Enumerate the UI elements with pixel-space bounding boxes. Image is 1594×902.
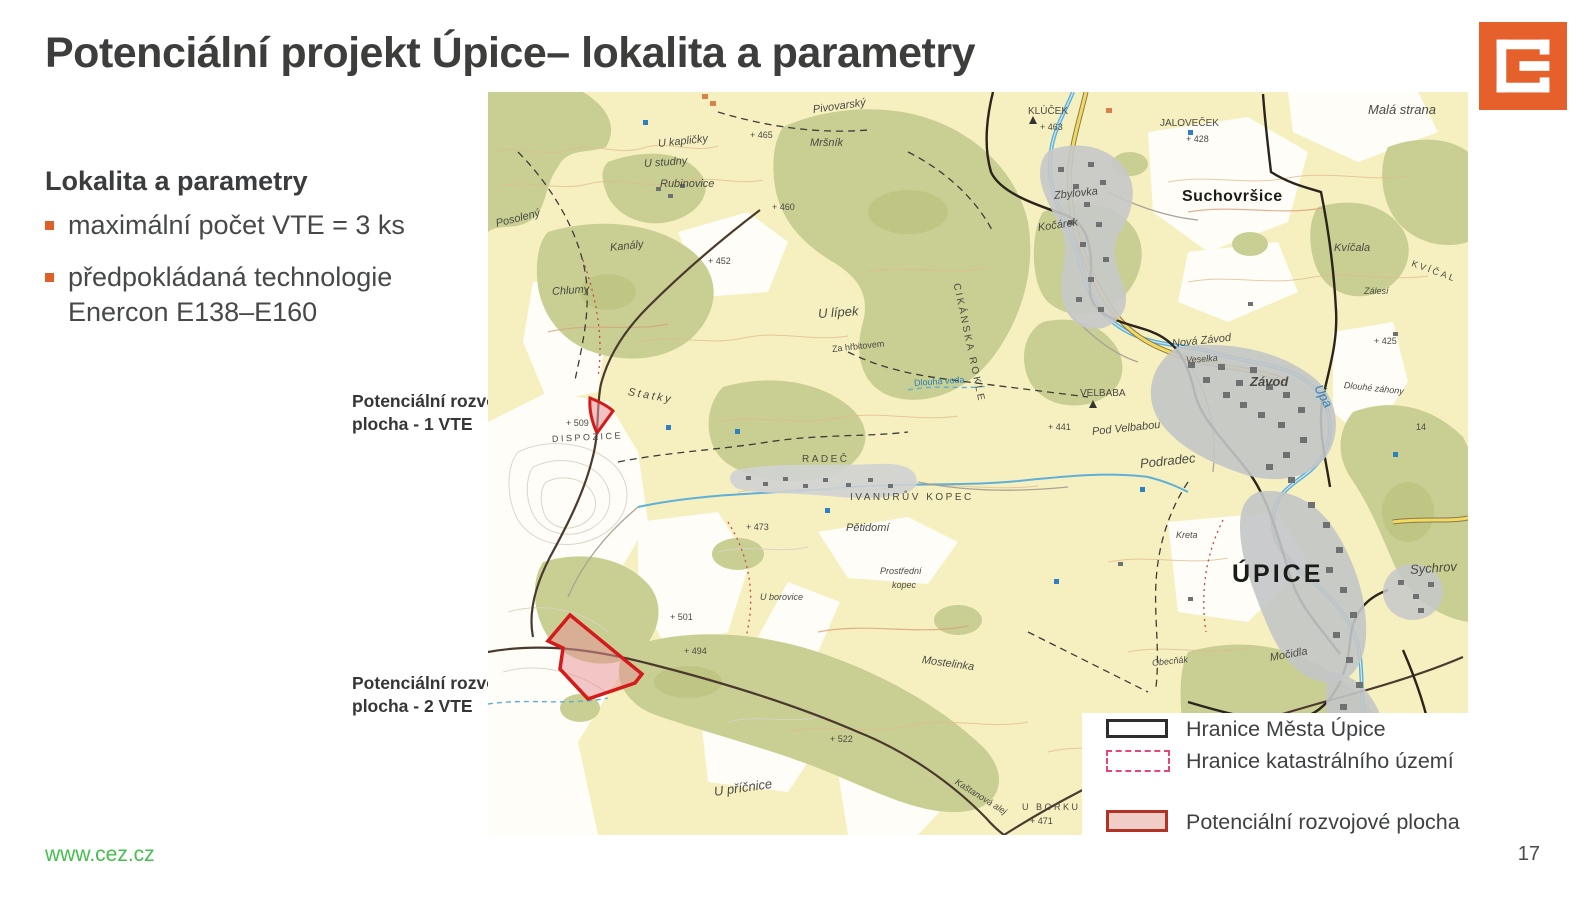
map: PivovarskýMršník+ 465KLÚČEK+ 463JALOVEČE…: [488, 92, 1468, 835]
legend-swatch-development-area: [1106, 810, 1168, 832]
bullet-list: maximální počet VTE = 3 ks předpokládaná…: [45, 208, 475, 347]
bullet-square-icon: [45, 221, 54, 230]
bullet-text: předpokládaná technologie Enercon E138–E…: [68, 260, 475, 331]
list-item: předpokládaná technologie Enercon E138–E…: [45, 260, 475, 331]
list-item: maximální počet VTE = 3 ks: [45, 208, 475, 244]
section-heading: Lokalita a parametry: [45, 166, 308, 197]
bullet-text: maximální počet VTE = 3 ks: [68, 208, 405, 244]
bullet-square-icon: [45, 273, 54, 282]
legend-swatch-cadastral-boundary: [1106, 750, 1170, 772]
map-legend: Hranice Města Úpice Hranice katastrálníh…: [1082, 713, 1502, 839]
legend-label: Hranice Města Úpice: [1186, 717, 1386, 742]
footer-link[interactable]: www.cez.cz: [45, 843, 155, 867]
slide: Potenciální projekt Úpice– lokalita a pa…: [0, 0, 1594, 902]
legend-swatch-city-boundary: [1106, 719, 1168, 738]
cez-logo-icon: [1479, 22, 1567, 110]
page-title: Potenciální projekt Úpice– lokalita a pa…: [45, 30, 1225, 77]
legend-label: Hranice katastrálního území: [1186, 749, 1454, 774]
legend-label: Potenciální rozvojové plocha: [1186, 810, 1460, 835]
page-number: 17: [1470, 843, 1540, 866]
